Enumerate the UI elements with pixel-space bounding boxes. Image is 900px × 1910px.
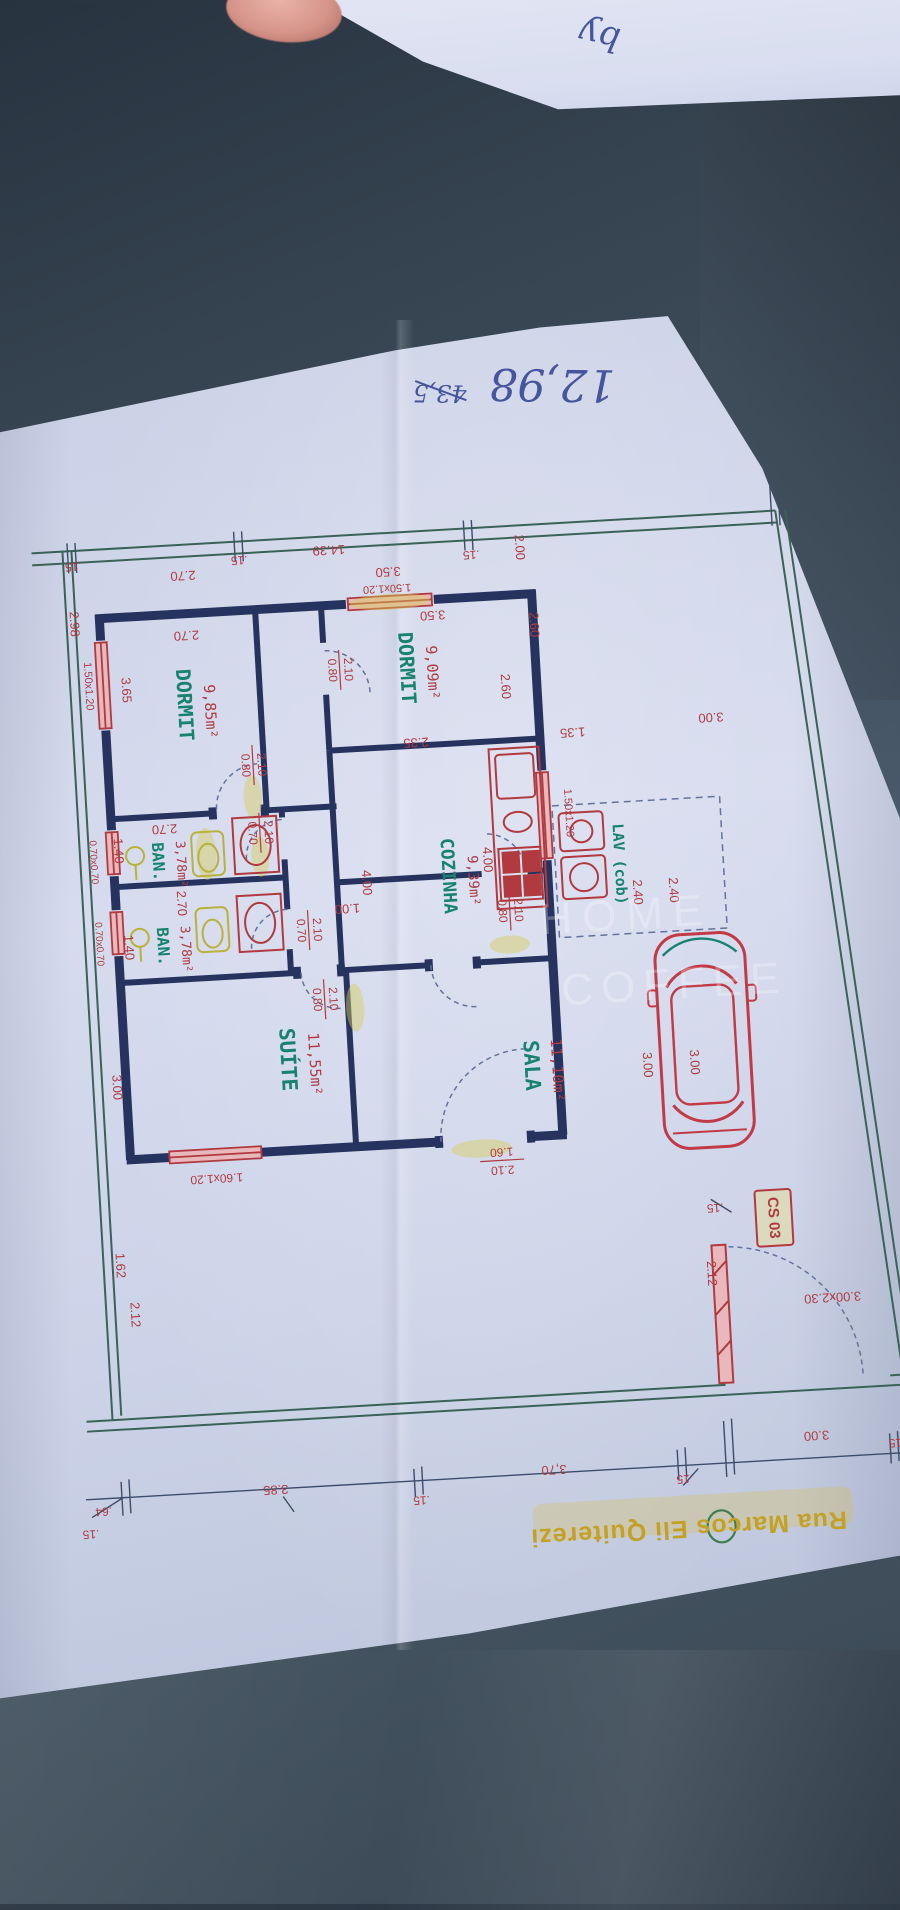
table-surface-streak [0, 1650, 900, 1910]
floor-plan-paper-sheet [0, 0, 900, 1904]
torn-paper-scrap [0, 0, 900, 140]
photo-of-floor-plan: { "palette":{ "red":"#b03a3f","teal":"#1… [0, 0, 900, 1904]
fingertip [223, 0, 345, 48]
